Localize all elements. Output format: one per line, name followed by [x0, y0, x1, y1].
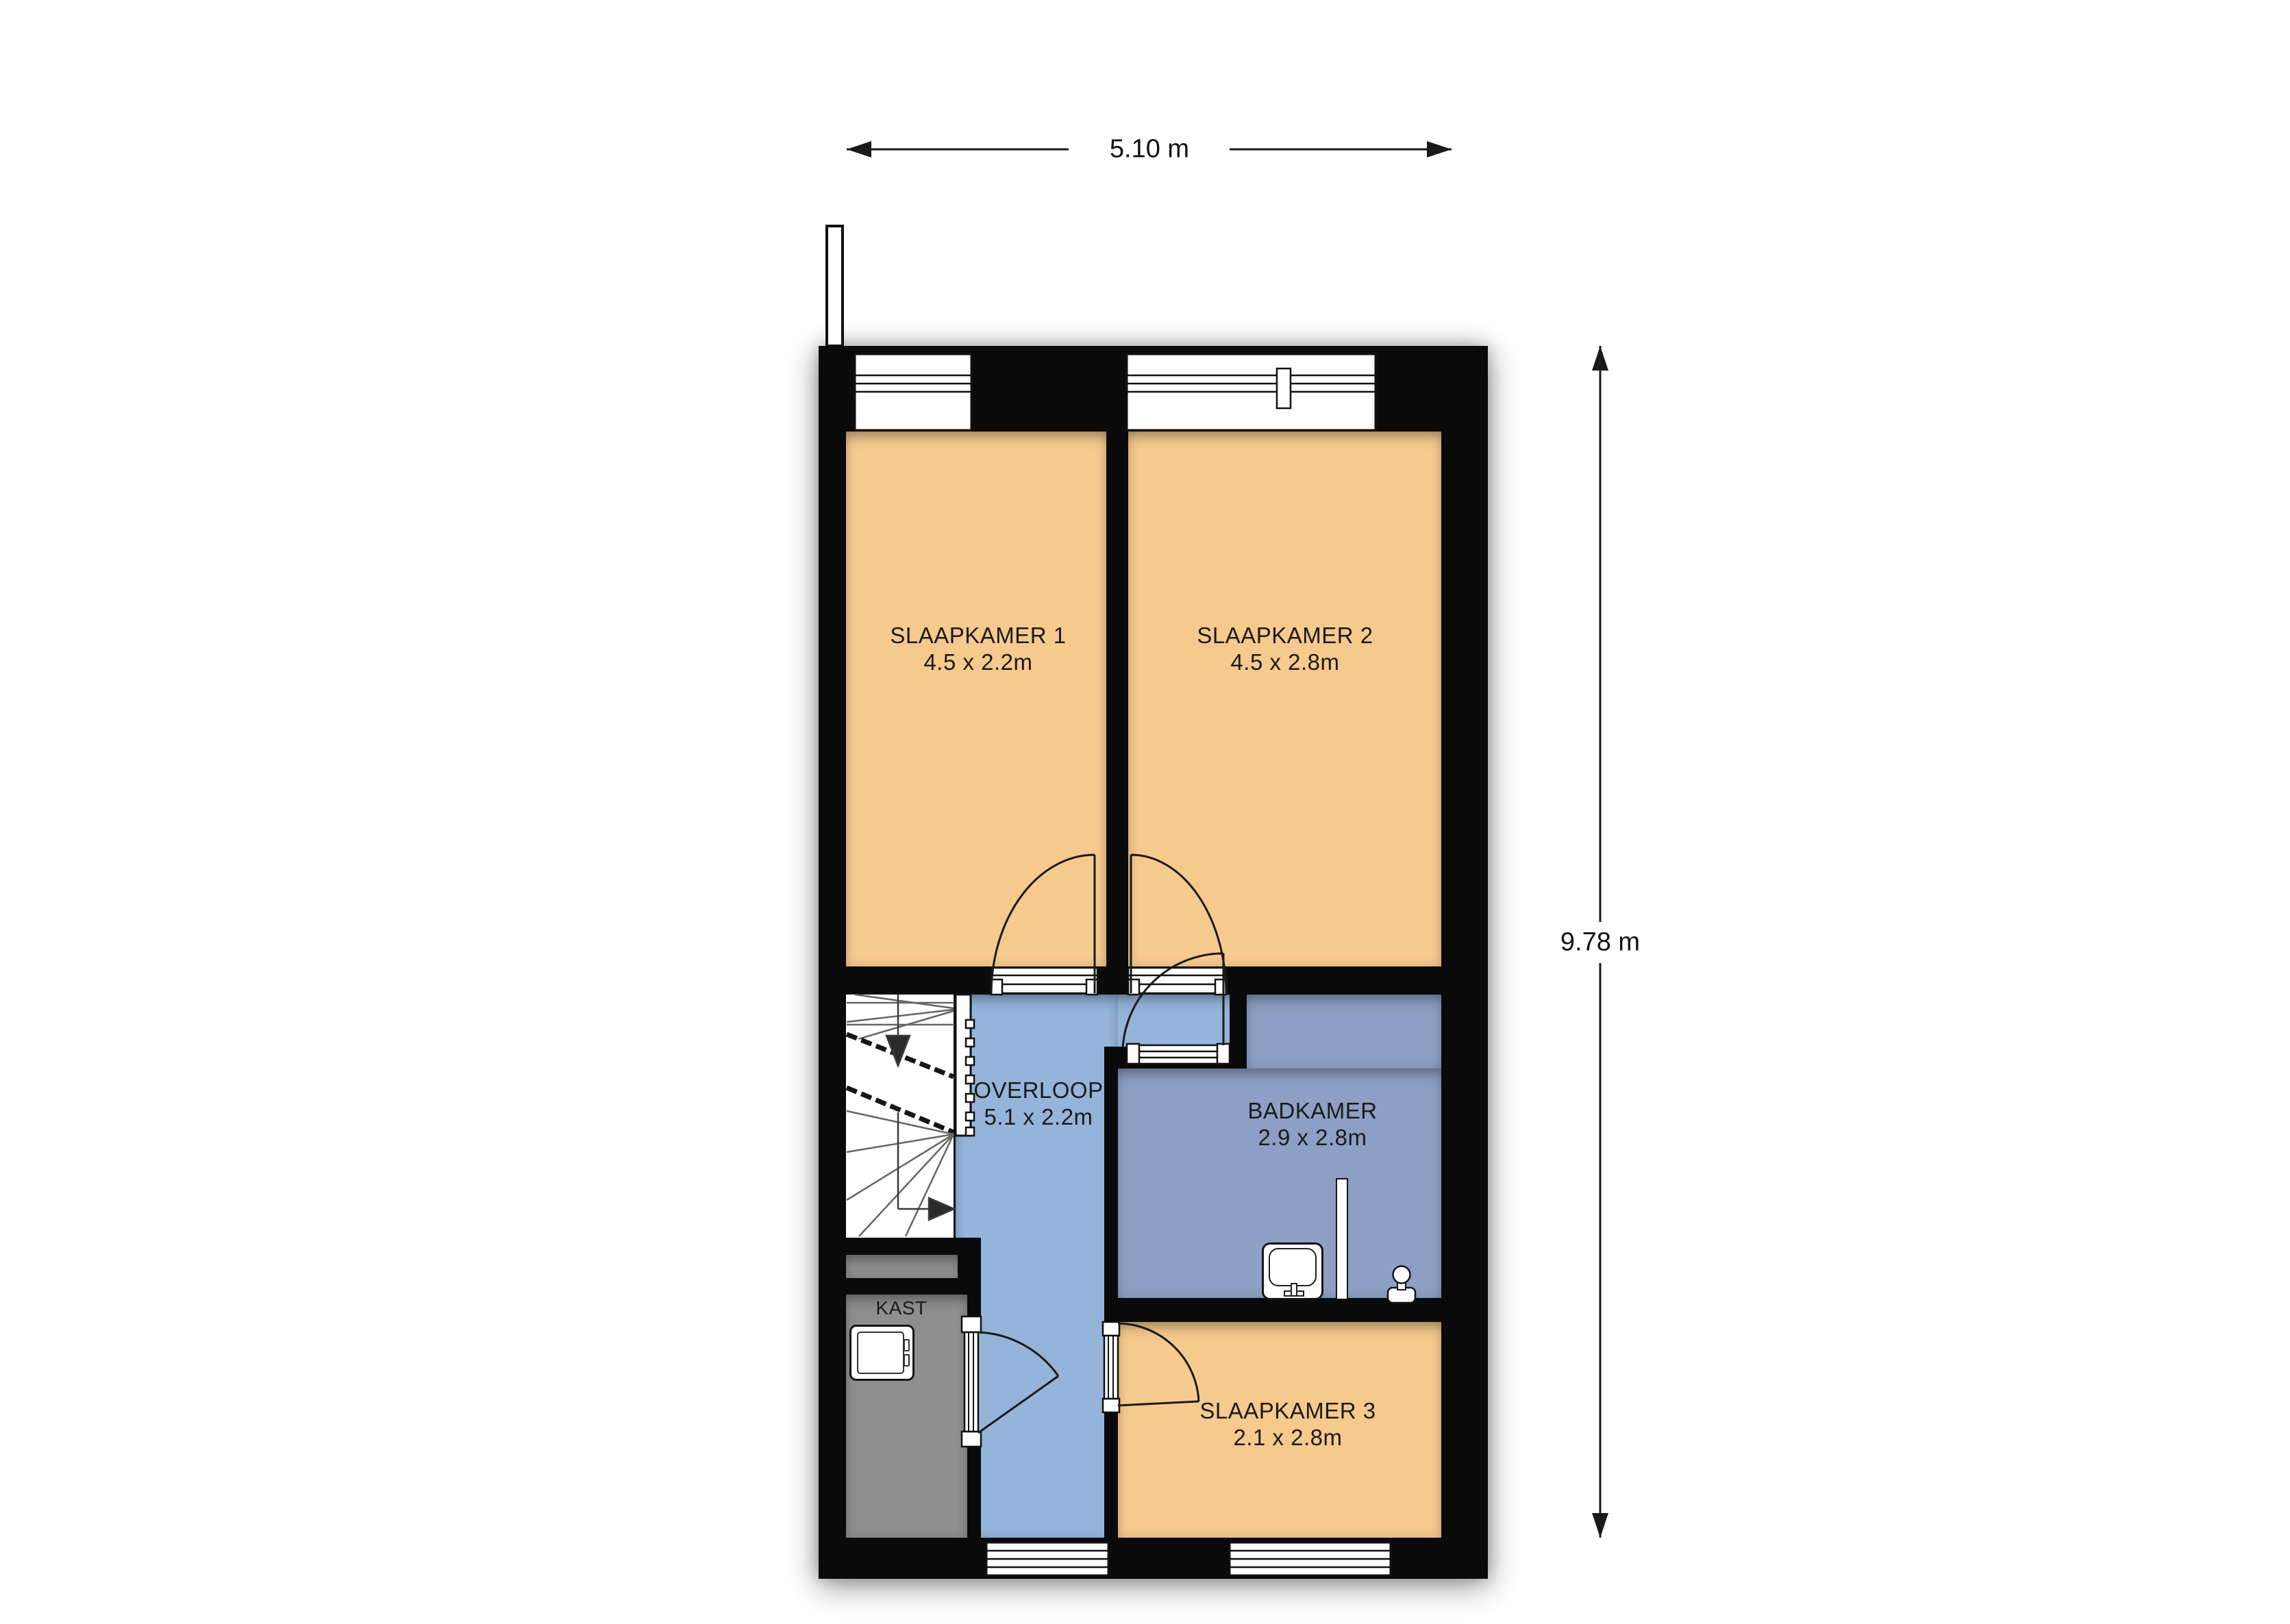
- door-bedroom1: [991, 855, 1097, 995]
- toilet-icon: [1388, 1266, 1415, 1303]
- washbasin-tap-icon: [1291, 1283, 1297, 1297]
- hallway-size: 5.1 x 2.2m: [973, 1104, 1103, 1130]
- bedroom3-name: SLAAPKAMER 3: [1199, 1397, 1376, 1425]
- bedroom2-name: SLAAPKAMER 2: [1197, 622, 1373, 649]
- shower-screen-icon: [1336, 1178, 1348, 1300]
- hallway-label: OVERLOOP 5.1 x 2.2m: [973, 1077, 1103, 1130]
- hallway-name: OVERLOOP: [973, 1077, 1103, 1104]
- bedroom1-name: SLAAPKAMER 1: [890, 622, 1066, 649]
- bathroom-size: 2.9 x 2.8m: [1247, 1125, 1377, 1151]
- floor-plan-canvas: SLAAPKAMER 1 4.5 x 2.2m SLAAPKAMER 2 4.5…: [0, 0, 2290, 1624]
- staircase-icon: [847, 995, 974, 1236]
- bathroom-label: BADKAMER 2.9 x 2.8m: [1247, 1097, 1377, 1151]
- bedroom2-size: 4.5 x 2.8m: [1197, 649, 1373, 675]
- door-closet: [962, 1316, 1058, 1447]
- stairs-railing: [956, 995, 974, 1136]
- door-bedroom3: [1103, 1322, 1199, 1412]
- washbasin-icon: [1262, 1242, 1323, 1300]
- bedroom1-label: SLAAPKAMER 1 4.5 x 2.2m: [890, 622, 1066, 675]
- window-bedroom3-south: [1230, 1542, 1391, 1575]
- washing-machine-door: [857, 1332, 904, 1374]
- bedroom3-size: 2.1 x 2.8m: [1199, 1425, 1376, 1451]
- bathroom-name: BADKAMER: [1247, 1097, 1377, 1125]
- window-bedroom2: [1127, 354, 1376, 430]
- dimension-width-label: 5.10 m: [1110, 135, 1189, 164]
- dimension-height-label: 9.78 m: [1560, 928, 1640, 958]
- bedroom2-label: SLAAPKAMER 2 4.5 x 2.8m: [1197, 622, 1373, 675]
- window-hallway-south: [986, 1542, 1108, 1575]
- washing-machine-hinge-top: [904, 1339, 910, 1351]
- closet-label: KAST: [875, 1295, 927, 1322]
- bedroom1-size: 4.5 x 2.2m: [890, 649, 1066, 675]
- window-bedroom1: [855, 354, 971, 430]
- washbasin-bowl: [1269, 1248, 1317, 1286]
- washing-machine-hinge-bottom: [904, 1354, 910, 1366]
- door-bedroom2: [1128, 855, 1226, 995]
- washing-machine-icon: [849, 1325, 914, 1381]
- closet-name: KAST: [875, 1295, 927, 1322]
- bedroom3-label: SLAAPKAMER 3 2.1 x 2.8m: [1199, 1397, 1376, 1451]
- linework-overlay: [0, 0, 2290, 1624]
